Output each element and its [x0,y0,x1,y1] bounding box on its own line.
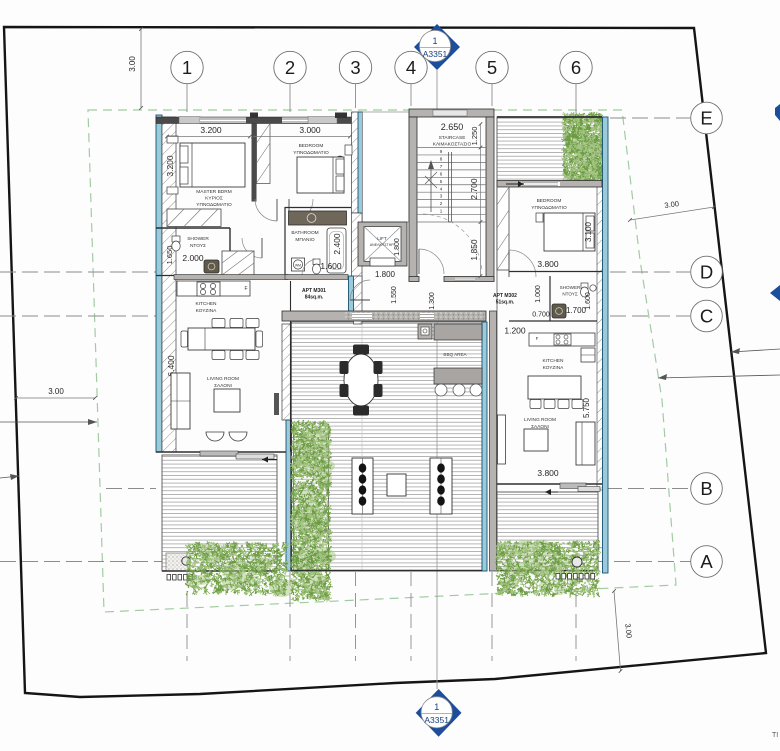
svg-text:KITCHEN: KITCHEN [542,358,564,364]
svg-text:0.700: 0.700 [532,312,550,319]
svg-text:3.00: 3.00 [623,623,633,638]
svg-text:3.100: 3.100 [584,221,593,242]
svg-text:ΑΝΕΛΚΥΣΤΗΡ.: ΑΝΕΛΚΥΣΤΗΡ. [370,243,395,247]
svg-text:APT M301: APT M301 [302,288,326,294]
svg-text:ΥΠΝΟΔΩΜΑΤΙΟ: ΥΠΝΟΔΩΜΑΤΙΟ [196,202,232,208]
svg-text:LIVING ROOM: LIVING ROOM [207,376,239,382]
svg-text:LIFT: LIFT [377,236,387,241]
svg-text:APT M302: APT M302 [493,293,517,299]
svg-text:3.000: 3.000 [299,125,321,135]
svg-text:A3351: A3351 [423,49,448,59]
svg-text:3: 3 [350,57,360,78]
svg-text:2.400: 2.400 [332,233,342,255]
svg-text:B: B [700,478,712,499]
svg-text:7: 7 [440,164,443,169]
svg-text:ΚΟΥΖΙΝΑ: ΚΟΥΖΙΝΑ [543,365,565,371]
svg-text:8: 8 [440,156,443,161]
svg-text:84sq.m.: 84sq.m. [305,295,324,301]
svg-text:1.250: 1.250 [470,127,479,146]
svg-text:1.600: 1.600 [585,292,592,310]
svg-text:ΚΥΡΙΟΣ: ΚΥΡΙΟΣ [205,196,223,202]
svg-text:3.00: 3.00 [48,387,64,396]
svg-text:ΜΠΑΝΙΟ: ΜΠΑΝΙΟ [295,237,314,243]
svg-text:BBQ AREA: BBQ AREA [443,352,467,357]
svg-text:ΥΠΝΟΔΩΜΑΤΙΟ: ΥΠΝΟΔΩΜΑΤΙΟ [531,205,567,211]
svg-text:ΝΤΟΥΣ: ΝΤΟΥΣ [190,243,206,249]
svg-text:51sq.m.: 51sq.m. [496,300,515,306]
svg-text:2.000: 2.000 [182,253,204,263]
svg-text:1.800: 1.800 [375,270,396,279]
svg-text:2: 2 [440,201,443,206]
svg-text:ΝΤΟΥΣ: ΝΤΟΥΣ [562,292,578,297]
svg-text:1.000: 1.000 [535,285,542,303]
svg-text:4: 4 [440,186,443,191]
svg-text:A: A [700,551,713,572]
svg-text:2.650: 2.650 [441,122,464,132]
svg-text:3.800: 3.800 [537,468,559,478]
svg-text:1: 1 [182,57,192,78]
svg-text:ΚΟΥΖΙΝΑ: ΚΟΥΖΙΝΑ [196,308,218,314]
svg-text:6: 6 [571,57,581,78]
svg-text:1: 1 [432,36,437,46]
svg-text:D: D [700,262,713,283]
svg-text:2.700: 2.700 [469,178,479,200]
svg-text:1: 1 [440,209,443,214]
svg-text:3.200: 3.200 [200,125,222,135]
svg-text:STAIRCASE: STAIRCASE [439,135,466,141]
svg-text:BEDROOM: BEDROOM [537,198,562,204]
svg-text:ΥΠΝΟΔΩΜΑΤΙΟ: ΥΠΝΟΔΩΜΑΤΙΟ [293,150,329,156]
svg-text:3: 3 [440,194,443,199]
svg-text:4: 4 [406,57,416,78]
svg-text:MASTER BDRM: MASTER BDRM [196,189,231,195]
svg-text:6: 6 [440,171,443,176]
svg-text:F: F [244,286,247,292]
svg-text:BATHROOM: BATHROOM [291,230,318,236]
svg-text:1: 1 [434,702,439,712]
svg-text:5: 5 [487,57,497,78]
svg-text:ΚΛΙΜΑΚΟΣΤΑΣΙΟ: ΚΛΙΜΑΚΟΣΤΑΣΙΟ [433,142,472,148]
svg-text:1.850: 1.850 [469,239,479,261]
svg-text:SHOWER: SHOWER [187,236,209,242]
svg-text:F: F [536,336,539,341]
svg-text:LIVING ROOM: LIVING ROOM [524,417,556,423]
svg-text:A3351: A3351 [424,715,449,725]
svg-text:5: 5 [440,179,443,184]
svg-text:ΣΑΛΟΝΙ: ΣΑΛΟΝΙ [214,383,232,389]
svg-text:1.200: 1.200 [504,326,526,336]
svg-text:SHOWER: SHOWER [560,285,581,290]
svg-text:2: 2 [285,57,295,78]
svg-text:1.550: 1.550 [391,286,398,304]
svg-text:WM: WM [295,264,301,268]
svg-text:C: C [700,306,713,327]
svg-text:3.00: 3.00 [128,56,137,72]
svg-text:1.800: 1.800 [394,238,401,256]
svg-text:E: E [700,108,712,129]
svg-text:3.800: 3.800 [537,259,559,269]
svg-text:3.200: 3.200 [165,155,175,177]
svg-text:1.600: 1.600 [320,261,342,271]
svg-text:1.700: 1.700 [566,306,587,315]
svg-text:KITCHEN: KITCHEN [195,301,217,307]
svg-text:BEDROOM: BEDROOM [299,143,324,149]
svg-text:1.300: 1.300 [429,292,436,310]
svg-text:TI: TI [772,732,778,739]
svg-text:9: 9 [440,149,443,154]
svg-text:5.750: 5.750 [582,397,591,418]
